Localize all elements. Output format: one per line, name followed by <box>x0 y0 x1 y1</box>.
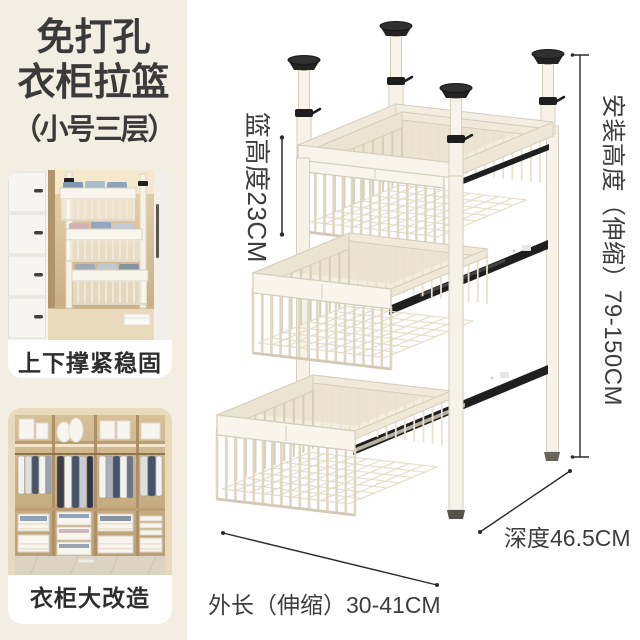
product-infographic: 免打孔 衣柜拉篮 （小号三层） <box>0 0 640 640</box>
depth-label: 深度46.5CM <box>504 519 631 553</box>
front-right-post <box>447 172 465 519</box>
basket-tier-3 <box>217 375 451 515</box>
wardrobe-pullout-rack <box>217 22 564 520</box>
rear-right-post <box>544 126 560 461</box>
outer-length-line <box>221 531 439 587</box>
install-height-line <box>571 53 589 459</box>
basket-height-label: 篮高度23CM <box>241 112 272 263</box>
outer-length-label: 外长（伸缩）30-41CM <box>208 586 441 620</box>
install-height-label: 安装高度（伸缩）79-150CM <box>597 94 626 406</box>
basket-height-line <box>280 135 284 236</box>
